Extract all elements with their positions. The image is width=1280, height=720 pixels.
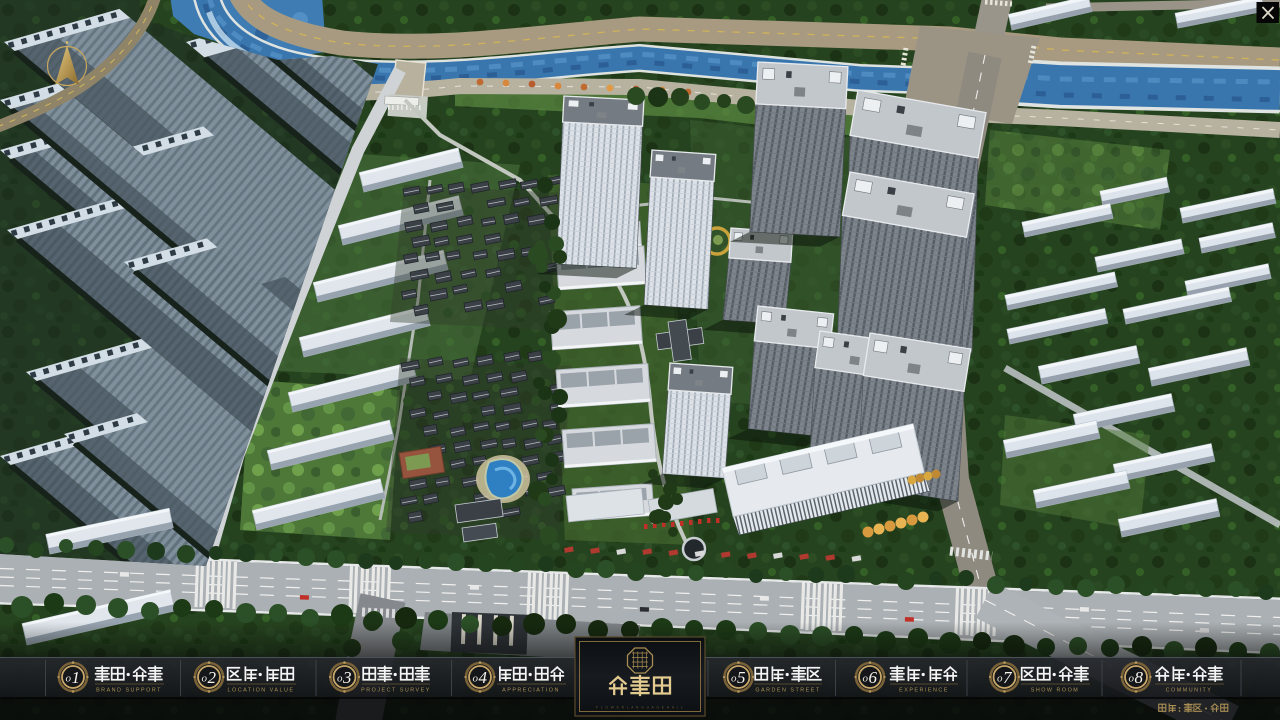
svg-text:8: 8 bbox=[1135, 668, 1144, 687]
svg-text:6: 6 bbox=[869, 668, 878, 687]
svg-text:1: 1 bbox=[72, 668, 81, 687]
svg-text:F L O W E R L A N G U A G E: F L O W E R L A N G U A G E H A L L bbox=[596, 706, 684, 710]
svg-text:EXPERIENCE: EXPERIENCE bbox=[899, 688, 949, 694]
svg-text:PROJECT SURVEY: PROJECT SURVEY bbox=[361, 688, 431, 694]
svg-text:4: 4 bbox=[479, 668, 488, 687]
svg-text:2: 2 bbox=[208, 668, 217, 687]
svg-text:APPRECIATION: APPRECIATION bbox=[502, 688, 560, 694]
svg-text:BRAND SUPPORT: BRAND SUPPORT bbox=[96, 688, 162, 694]
svg-text:COMMUNITY: COMMUNITY bbox=[1166, 688, 1213, 694]
svg-text:LOCATION VALUE: LOCATION VALUE bbox=[228, 688, 295, 694]
svg-text:5: 5 bbox=[737, 668, 746, 687]
svg-text:3: 3 bbox=[342, 668, 352, 687]
svg-text:SHOW ROOM: SHOW ROOM bbox=[1031, 688, 1080, 694]
svg-text:GARDEN STREET: GARDEN STREET bbox=[755, 688, 820, 694]
